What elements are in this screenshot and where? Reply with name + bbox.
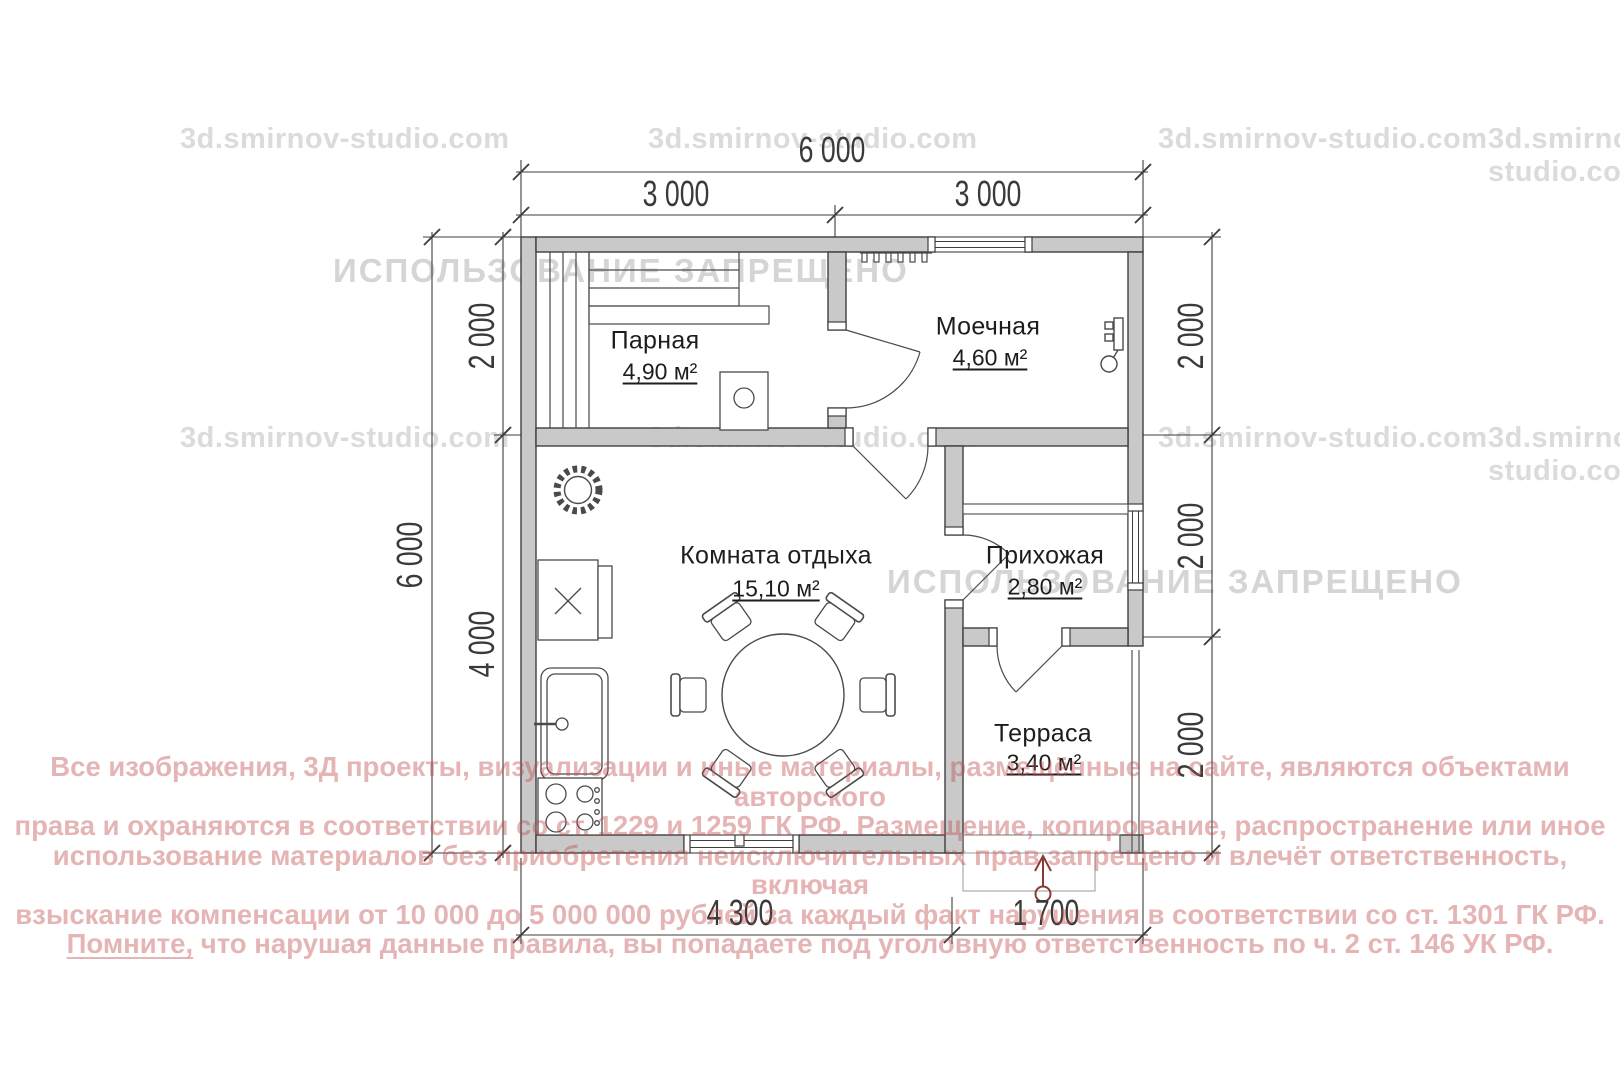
dim-left-upper: 2 000 [461, 303, 503, 370]
dim-top-left: 3 000 [643, 173, 710, 215]
legal-line: использование материалов без приобретени… [0, 841, 1620, 900]
room-name-lounge: Комната отдыха [680, 542, 872, 571]
heater-symbol [557, 469, 599, 511]
room-area-parnaya: 4,90 м² [623, 359, 698, 386]
wall-midband-right [928, 428, 1128, 446]
legal-watermark: Все изображения, 3Д проекты, визуализаци… [0, 752, 1620, 959]
wall-top-right [1025, 237, 1143, 252]
dim-top-right: 3 000 [955, 173, 1022, 215]
dim-left-total: 6 000 [389, 522, 431, 589]
wall-hall-bottom-right [1062, 628, 1128, 646]
hall-bench [963, 504, 1128, 514]
radiator [860, 253, 932, 262]
shower-mixer-icon [1101, 318, 1123, 372]
room-name-parnaya: Парная [611, 327, 700, 356]
door-moechnaya-parnaya [846, 330, 920, 408]
legal-line5-rest: что нарушая данные правила, вы попадаете… [193, 928, 1553, 959]
legal-line: права и охраняются в соответствии со ст.… [0, 811, 1620, 841]
dim-left-lower: 4 000 [461, 611, 503, 678]
floor-plan-image: 3d.smirnov-studio.com 3d.smirnov-studio.… [0, 0, 1620, 1080]
wall-parnaya-moechnaya-top [828, 252, 846, 330]
room-area-lounge: 15,10 м² [732, 576, 819, 603]
dim-top-total: 6 000 [799, 129, 866, 171]
wall-top-left [536, 237, 935, 252]
window-hallway [1128, 504, 1143, 590]
wall-hall-left-upper [945, 446, 963, 535]
room-name-terrace: Терраса [994, 720, 1092, 749]
wall-midband-left [536, 428, 853, 446]
kitchen-cabinet [538, 560, 612, 640]
room-area-moechnaya: 4,60 м² [953, 345, 1028, 372]
legal-line: Помните, что нарушая данные правила, вы … [0, 929, 1620, 959]
door-hallway-terrace [997, 646, 1062, 692]
room-area-hallway: 2,80 м² [1008, 574, 1083, 601]
room-name-hallway: Прихожая [986, 542, 1104, 571]
dining-table [722, 634, 844, 756]
dim-right-middle: 2 000 [1170, 503, 1212, 570]
legal-line: Все изображения, 3Д проекты, визуализаци… [0, 752, 1620, 811]
dim-right-upper: 2 000 [1170, 303, 1212, 370]
legal-line5-lead: Помните, [67, 928, 193, 959]
window-moechnaya [928, 237, 1032, 252]
sauna-stove [720, 372, 768, 430]
door-lounge-moechnaya [853, 446, 928, 499]
room-name-moechnaya: Моечная [936, 313, 1040, 342]
legal-line: взыскание компенсации от 10 000 до 5 000… [0, 900, 1620, 930]
